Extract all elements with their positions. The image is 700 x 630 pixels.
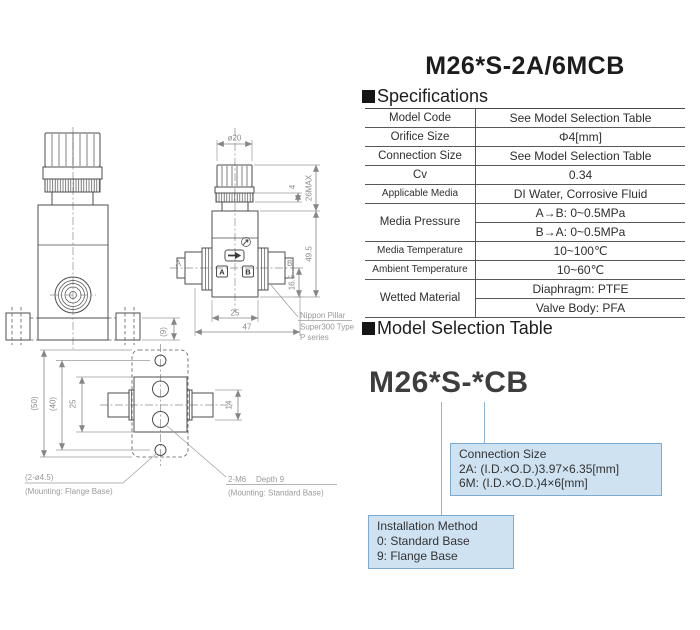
table-row: Cv 0.34 <box>365 166 685 185</box>
installation-method-title: Installation Method <box>377 519 505 534</box>
bottom-view: (50) (40) 25 14 (2-ø4.5) (Mounting: Flan… <box>25 344 337 498</box>
spec-value: 0.34 <box>476 166 686 185</box>
spec-label: Ambient Temperature <box>365 261 476 280</box>
fitting-note-line2: Super300 Type <box>300 323 355 332</box>
rotation-icon <box>242 238 251 247</box>
model-selection-heading: Model Selection Table <box>362 318 553 339</box>
dim-25-bottom: 25 <box>69 399 78 408</box>
table-row: Media Temperature 10~100℃ <box>365 242 685 261</box>
technical-drawing: (9) A B <box>0 0 360 630</box>
connection-size-option-2a: 2A: (I.D.×O.D.)3.97×6.35[mm] <box>459 462 653 477</box>
spec-label: Model Code <box>365 109 476 128</box>
model-code: M26*S-*CB <box>369 366 529 400</box>
spec-value: B→A: 0~0.5MPa <box>476 223 686 242</box>
spec-label: Media Pressure <box>365 204 476 242</box>
bullet-square-icon <box>362 322 375 335</box>
connection-size-option-6m: 6M: (I.D.×O.D.)4×6[mm] <box>459 476 653 491</box>
spec-value: Diaphragm: PTFE <box>476 280 686 299</box>
spec-label: Orifice Size <box>365 128 476 147</box>
side-view: A B A B ø20 4 26MAX 49.5 <box>170 128 355 342</box>
spec-label: Applicable Media <box>365 185 476 204</box>
table-row: Applicable Media DI Water, Corrosive Flu… <box>365 185 685 204</box>
connection-leader-line <box>484 402 485 443</box>
m6-note: 2-M6 <box>228 475 247 484</box>
connection-size-callout: Connection Size 2A: (I.D.×O.D.)3.97×6.35… <box>450 443 662 496</box>
spec-value: DI Water, Corrosive Fluid <box>476 185 686 204</box>
spec-value: Φ4[mm] <box>476 128 686 147</box>
port-b-box-label: B <box>245 267 251 276</box>
dim-14: 14 <box>225 400 234 409</box>
dim-4: 4 <box>288 184 297 189</box>
bullet-square-icon <box>362 90 375 103</box>
dim-dia20: ø20 <box>228 134 242 143</box>
model-selection-heading-label: Model Selection Table <box>377 318 553 339</box>
spec-label: Cv <box>365 166 476 185</box>
dim-47: 47 <box>243 323 252 332</box>
installation-method-callout: Installation Method 0: Standard Base 9: … <box>368 515 514 569</box>
spec-value: See Model Selection Table <box>476 147 686 166</box>
port-b-label: B <box>287 259 292 268</box>
table-row: Orifice Size Φ4[mm] <box>365 128 685 147</box>
dim-16-5: 16.5 <box>288 274 297 290</box>
datasheet-page: (9) A B <box>0 0 700 630</box>
spec-value: A→B: 0~0.5MPa <box>476 204 686 223</box>
standard-mount-note: (Mounting: Standard Base) <box>228 489 324 498</box>
port-a-label: A <box>176 259 182 268</box>
spec-value: 10~100℃ <box>476 242 686 261</box>
flange-mount-note: (Mounting: Flange Base) <box>25 487 113 496</box>
fitting-note-line1: Nippon Pillar <box>300 311 346 320</box>
installation-leader-line <box>441 402 442 515</box>
specifications-heading-label: Specifications <box>377 86 488 107</box>
table-row: Media Pressure A→B: 0~0.5MPa <box>365 204 685 223</box>
table-row: Ambient Temperature 10~60℃ <box>365 261 685 280</box>
table-row: Model Code See Model Selection Table <box>365 109 685 128</box>
spec-value: 10~60℃ <box>476 261 686 280</box>
specifications-heading: Specifications <box>362 86 488 107</box>
dim-40: (40) <box>49 397 58 412</box>
dim-49-5: 49.5 <box>305 246 314 262</box>
connection-size-title: Connection Size <box>459 447 653 462</box>
spec-label: Wetted Material <box>365 280 476 318</box>
specifications-table: Model Code See Model Selection Table Ori… <box>365 108 685 318</box>
installation-option-flange: 9: Flange Base <box>377 549 505 564</box>
table-row: Connection Size See Model Selection Tabl… <box>365 147 685 166</box>
table-row: Wetted Material Diaphragm: PTFE <box>365 280 685 299</box>
dim-25-side: 25 <box>231 309 240 318</box>
dim-26max: 26MAX <box>305 174 314 201</box>
fitting-note-line3: P series <box>300 333 329 342</box>
port-a-box-label: A <box>219 267 225 276</box>
spec-value: See Model Selection Table <box>476 109 686 128</box>
flange-hole-note: (2-ø4.5) <box>25 473 54 482</box>
m6-depth-note: Depth 9 <box>256 475 285 484</box>
installation-option-standard: 0: Standard Base <box>377 534 505 549</box>
dim-9: (9) <box>159 327 168 337</box>
spec-label: Media Temperature <box>365 242 476 261</box>
dim-50: (50) <box>30 396 39 411</box>
page-title: M26*S-2A/6MCB <box>365 52 685 81</box>
spec-value: Valve Body: PFA <box>476 299 686 318</box>
flow-arrow-icon <box>228 252 241 259</box>
spec-label: Connection Size <box>365 147 476 166</box>
front-view: (9) <box>6 127 180 349</box>
